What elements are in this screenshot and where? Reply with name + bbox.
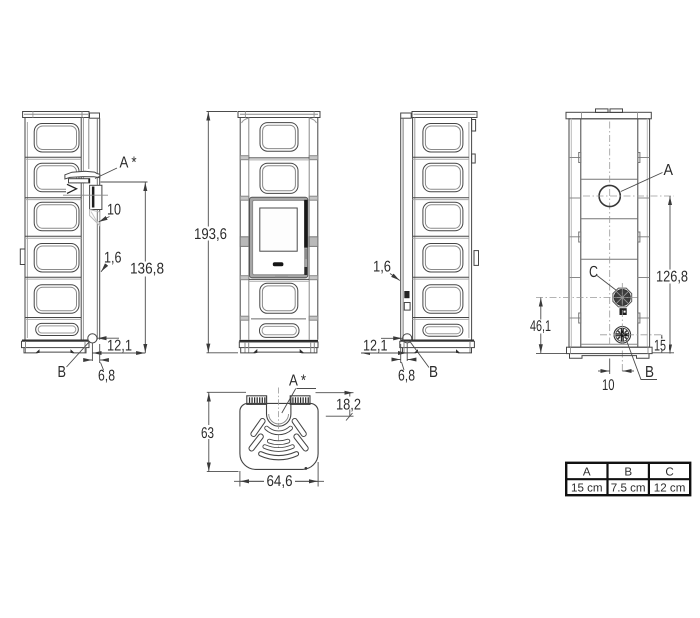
svg-text:18,2: 18,2 — [336, 397, 361, 414]
svg-text:63: 63 — [201, 425, 214, 442]
svg-text:A *: A * — [120, 155, 137, 172]
svg-text:6,8: 6,8 — [98, 368, 115, 385]
svg-text:46,1: 46,1 — [530, 318, 551, 335]
svg-text:C: C — [589, 264, 598, 281]
svg-text:A: A — [583, 466, 591, 479]
svg-text:136,8: 136,8 — [130, 261, 164, 278]
svg-text:B: B — [429, 364, 438, 381]
svg-text:12 cm: 12 cm — [654, 481, 686, 494]
svg-text:B: B — [645, 364, 654, 381]
svg-text:B: B — [58, 364, 67, 381]
svg-text:A: A — [664, 162, 674, 179]
svg-text:1,6: 1,6 — [373, 259, 391, 276]
svg-text:12,1: 12,1 — [363, 338, 388, 355]
svg-text:6,8: 6,8 — [398, 368, 415, 385]
svg-text:15 cm: 15 cm — [571, 481, 603, 494]
svg-text:C: C — [665, 466, 673, 479]
svg-text:126,8: 126,8 — [656, 269, 688, 286]
svg-text:64,6: 64,6 — [267, 473, 293, 490]
svg-text:7.5 cm: 7.5 cm — [611, 481, 646, 494]
svg-text:A *: A * — [289, 373, 306, 390]
svg-text:1,6: 1,6 — [104, 250, 122, 267]
svg-text:10: 10 — [602, 377, 615, 394]
svg-text:12,1: 12,1 — [107, 338, 132, 355]
svg-text:10: 10 — [107, 202, 121, 219]
svg-text:193,6: 193,6 — [194, 226, 227, 243]
svg-text:B: B — [624, 466, 632, 479]
svg-text:15: 15 — [654, 338, 666, 355]
